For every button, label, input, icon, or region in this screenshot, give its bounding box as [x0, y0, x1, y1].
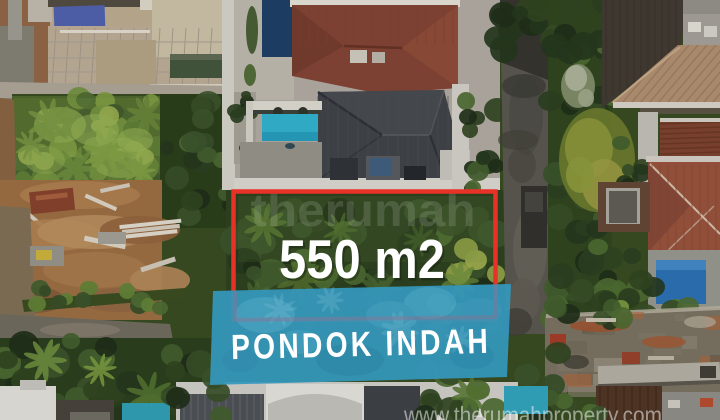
- svg-text:550 m2: 550 m2: [279, 228, 445, 290]
- svg-text:www.therumahproperty.com: www.therumahproperty.com: [403, 402, 662, 420]
- svg-text:PONDOK INDAH: PONDOK INDAH: [231, 322, 492, 367]
